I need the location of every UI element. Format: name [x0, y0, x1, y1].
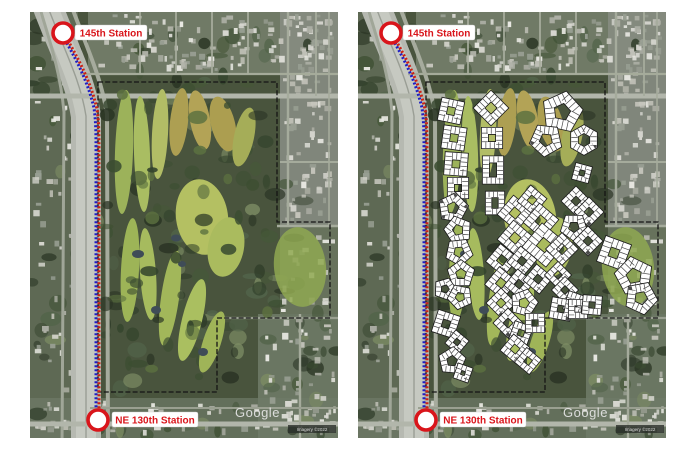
map-panel-existing-site: [30, 12, 338, 438]
slide-page: 145th Station NE 130th Station Google Im…: [0, 0, 696, 451]
existing-site-map: [30, 12, 338, 438]
development-concept-map: [358, 12, 666, 438]
map-panel-development-concept: [358, 12, 666, 438]
